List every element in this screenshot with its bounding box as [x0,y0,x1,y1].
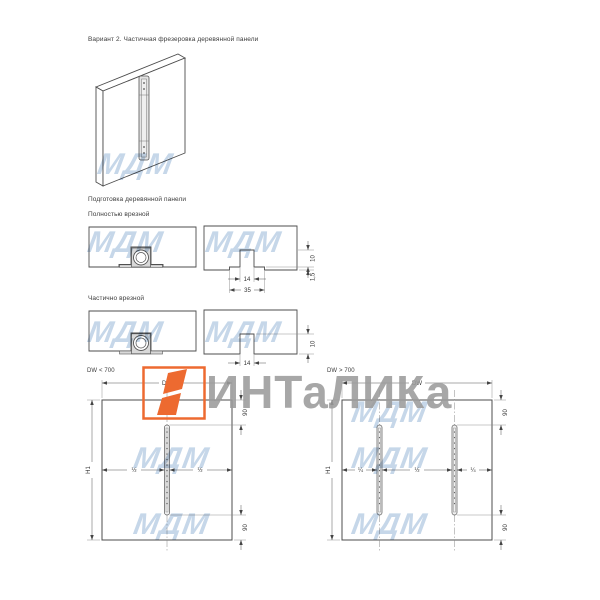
section-full-recess-label: Полностью врезной [88,211,150,218]
isometric-panel-drawing [88,50,208,195]
dim-dw: DW [412,381,422,387]
dim-dw: DW [162,381,172,387]
dim-frac-mid: ½ [414,467,419,474]
dim-inner-width: 14 [244,277,251,283]
dim-depth: 10 [311,340,317,347]
wide-panel-drawing: DW H1 ¼ ½ ¼ 90 90 [325,376,515,573]
full-recess-section-drawing [86,222,200,288]
dim-top-offset: 90 [503,409,509,416]
narrow-panel-drawing: DW H1 ½ ½ 90 90 [85,376,253,573]
milling-profile-outline [204,226,297,270]
dim-right-frac: ½ [197,467,202,474]
full-recess-dimension-drawing: 14 35 10 1,5 [200,220,332,298]
dim-inner-width: 14 [244,361,251,367]
dim-bottom-offset: 90 [243,524,249,531]
profile-strip-left [377,425,382,515]
hanger-profile-3d [139,76,149,160]
milling-profile-outline [204,310,297,354]
partial-recess-section-drawing [86,306,200,376]
page-title: Вариант 2. Частичная фрезеровка деревянн… [88,36,258,43]
dim-left-frac: ½ [131,467,136,474]
dim-top-offset: 90 [243,409,249,416]
profile-strip-right [452,425,457,515]
catalog-sheet: Вариант 2. Частичная фрезеровка деревянн… [0,0,600,600]
dim-bottom-offset: 90 [503,524,509,531]
profile-strip [165,425,170,515]
section-partial-recess-label: Частично врезной [88,295,144,302]
dim-h1: H1 [86,466,92,474]
dim-step: 1,5 [311,272,317,281]
prep-heading: Подготовка деревянной панели [88,196,186,203]
dim-outer-width: 35 [244,288,251,294]
dim-h1: H1 [326,466,332,474]
partial-recess-dimension-drawing: 14 10 [200,304,332,376]
dim-depth: 10 [311,255,317,262]
